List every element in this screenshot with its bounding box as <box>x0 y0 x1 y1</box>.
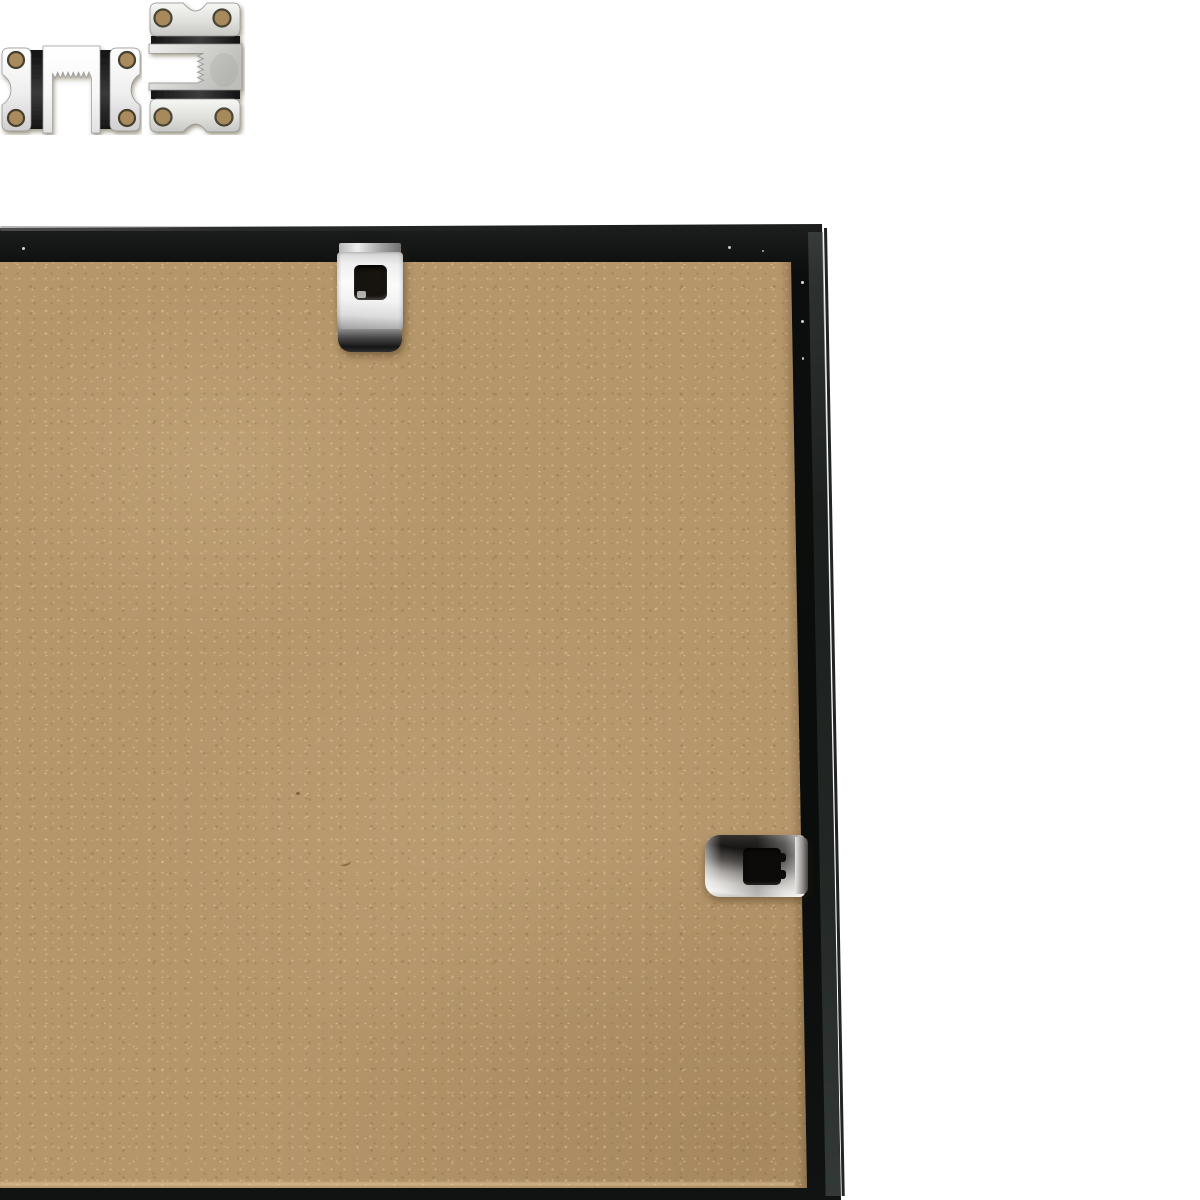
dust-speck <box>762 250 764 252</box>
clip-bottom-curl <box>338 329 402 352</box>
sawtooth-hanger-bottom <box>146 0 245 135</box>
screw-hole <box>119 52 135 68</box>
top-retainer-clip <box>337 243 403 356</box>
dust-speck <box>22 247 25 250</box>
screw-hole <box>214 10 231 27</box>
screw-hole <box>216 109 233 126</box>
screw-hole <box>155 109 172 126</box>
metal-smudge <box>210 53 238 87</box>
right-retainer-clip <box>705 835 805 897</box>
photo-stage <box>0 0 1200 1200</box>
screw-hole <box>155 10 172 27</box>
screw-hole <box>8 52 24 68</box>
clip-rolled-end <box>795 837 808 894</box>
clip-hole <box>743 848 781 885</box>
frame-bottom-edge <box>0 1182 795 1186</box>
clip-hole <box>354 265 387 300</box>
board-fiber-speck <box>339 857 352 867</box>
hanger-sawtooth-bridge <box>43 46 100 133</box>
frame-top-edge <box>0 226 600 231</box>
dust-speck <box>728 246 731 249</box>
dust-speck <box>801 281 804 284</box>
board-fiber-speck <box>296 792 300 795</box>
mdf-backing-board <box>0 262 807 1188</box>
sawtooth-hanger-top <box>0 44 142 135</box>
screw-hole <box>119 110 135 126</box>
screw-hole <box>8 110 24 126</box>
dust-speck <box>802 357 804 360</box>
dust-speck <box>801 320 804 323</box>
